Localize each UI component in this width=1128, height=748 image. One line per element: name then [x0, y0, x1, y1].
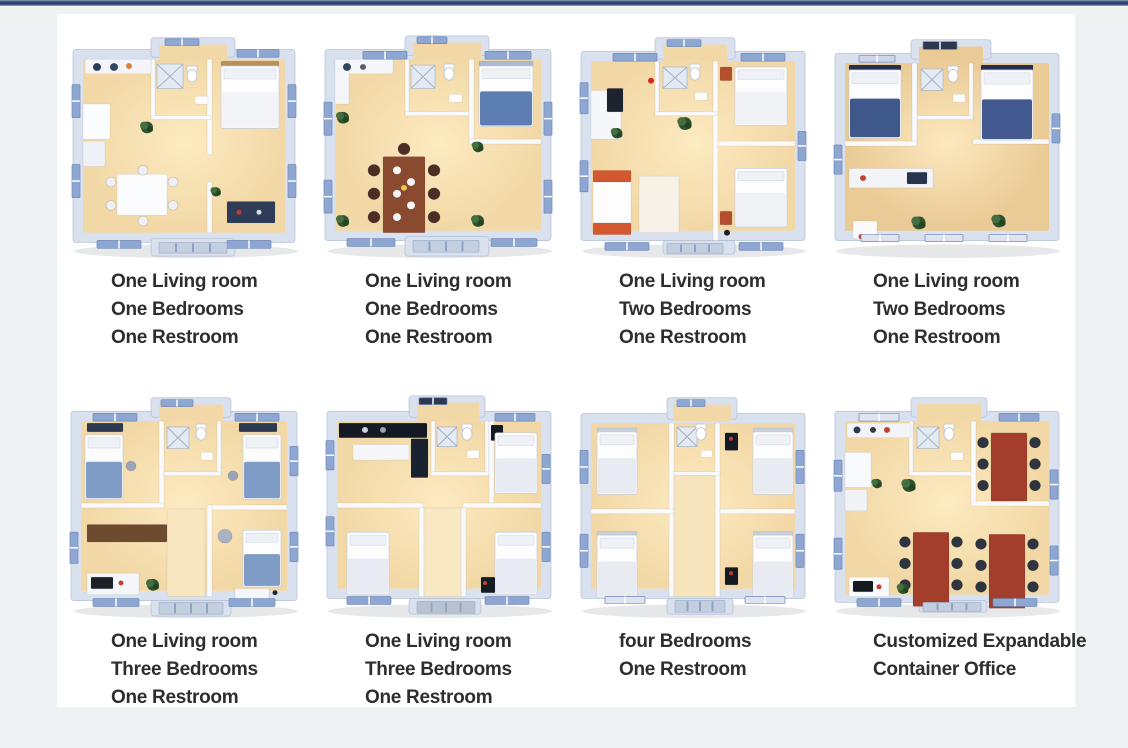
caption-line: One Living room	[111, 628, 313, 656]
top-accent-bar	[0, 0, 1128, 6]
caption-line: One Restroom	[619, 324, 821, 352]
caption-line: One Bedrooms	[111, 296, 313, 324]
floor-plan-grid: One Living room One Bedrooms One Restroo…	[57, 14, 1075, 748]
floor-plan-image	[821, 388, 1071, 620]
caption-line: One Restroom	[619, 656, 821, 684]
floor-plan-image	[59, 388, 309, 620]
floor-plan-card: Customized Expandable Container Office	[821, 388, 1075, 748]
caption-line: Customized Expandable	[873, 628, 1075, 656]
floor-plan-image	[567, 388, 817, 620]
caption-line: Two Bedrooms	[873, 296, 1075, 324]
caption-line: Two Bedrooms	[619, 296, 821, 324]
caption-line: One Living room	[365, 628, 567, 656]
floor-plan-card: One Living room One Bedrooms One Restroo…	[313, 28, 567, 388]
floor-plan-card: four Bedrooms One Restroom	[567, 388, 821, 748]
floor-plan-image	[59, 28, 309, 260]
caption-line: One Restroom	[111, 684, 313, 712]
product-image-panel: One Living room One Bedrooms One Restroo…	[57, 14, 1075, 707]
caption-line: Three Bedrooms	[111, 656, 313, 684]
floor-plan-image	[821, 28, 1071, 260]
caption-line: Container Office	[873, 656, 1075, 684]
floor-plan-caption: One Living room Two Bedrooms One Restroo…	[873, 268, 1075, 352]
caption-line: One Restroom	[111, 324, 313, 352]
floor-plan-caption: One Living room One Bedrooms One Restroo…	[365, 268, 567, 352]
floor-plan-card: One Living room Two Bedrooms One Restroo…	[821, 28, 1075, 388]
caption-line: One Restroom	[873, 324, 1075, 352]
caption-line: One Restroom	[365, 324, 567, 352]
caption-line: One Restroom	[365, 684, 567, 712]
floor-plan-image	[567, 28, 817, 260]
caption-line: One Bedrooms	[365, 296, 567, 324]
floor-plan-card: One Living room Two Bedrooms One Restroo…	[567, 28, 821, 388]
caption-line: four Bedrooms	[619, 628, 821, 656]
floor-plan-caption: One Living room Two Bedrooms One Restroo…	[619, 268, 821, 352]
caption-line: One Living room	[365, 268, 567, 296]
floor-plan-card: One Living room Three Bedrooms One Restr…	[313, 388, 567, 748]
floor-plan-caption: One Living room Three Bedrooms One Restr…	[111, 628, 313, 712]
floor-plan-image	[313, 28, 563, 260]
floor-plan-image	[313, 388, 563, 620]
floor-plan-caption: Customized Expandable Container Office	[873, 628, 1075, 684]
caption-line: One Living room	[619, 268, 821, 296]
floor-plan-caption: four Bedrooms One Restroom	[619, 628, 821, 684]
caption-line: One Living room	[111, 268, 313, 296]
floor-plan-card: One Living room One Bedrooms One Restroo…	[59, 28, 313, 388]
caption-line: Three Bedrooms	[365, 656, 567, 684]
caption-line: One Living room	[873, 268, 1075, 296]
floor-plan-caption: One Living room One Bedrooms One Restroo…	[111, 268, 313, 352]
floor-plan-card: One Living room Three Bedrooms One Restr…	[59, 388, 313, 748]
floor-plan-caption: One Living room Three Bedrooms One Restr…	[365, 628, 567, 712]
